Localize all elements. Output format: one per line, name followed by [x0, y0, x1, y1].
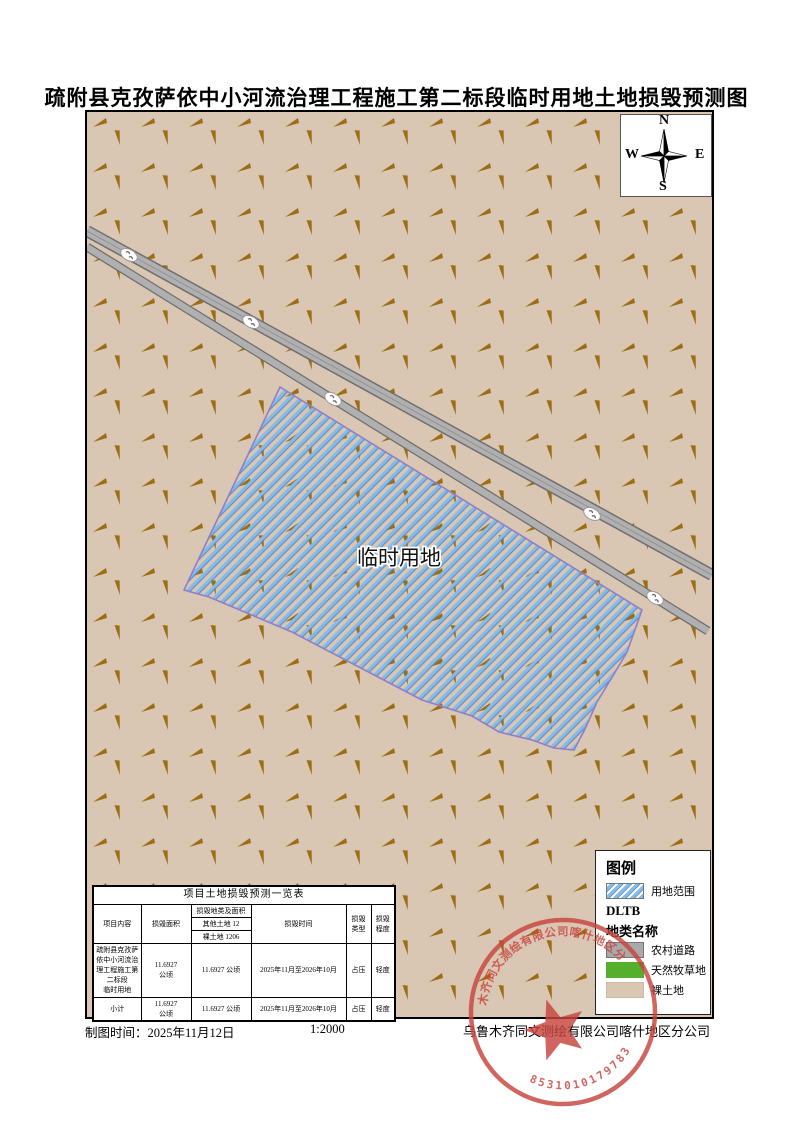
table-row: 小计 11.6927 公顷 11.6927 公顷 2025年11月至2026年1…: [93, 997, 395, 1021]
north-arrow-box: N S W E: [620, 114, 712, 197]
cell-type: 占压: [346, 997, 371, 1021]
header-project: 项目内容: [93, 904, 141, 943]
damage-prediction-table: 项目土地损毁预测一览表 项目内容 损毁面积 损毁地类及面积 损毁时间 损毁 类型…: [92, 885, 396, 1022]
map-time-label: 制图时间：2025年11月12日: [85, 1022, 235, 1041]
cell-time: 2025年11月至2026年10月: [251, 943, 346, 997]
page-title: 疏附县克孜萨依中小河流治理工程施工第二标段临时用地土地损毁预测图: [0, 82, 793, 112]
parcel-label: 临时用地: [357, 546, 441, 570]
header-land-top: 损毁地类及面积: [191, 904, 251, 917]
header-land-bot: 裸土地 1206: [191, 930, 251, 943]
table-title: 项目土地损毁预测一览表: [93, 886, 395, 904]
cell-area: 11.6927 公顷: [141, 943, 191, 997]
document-page: { "doc": { "title": "疏附县克孜萨依中小河流治理工程施工第二…: [0, 0, 793, 1122]
header-area: 损毁面积: [141, 904, 191, 943]
cell-degree: 轻度: [371, 997, 395, 1021]
table-row: 疏附县克孜萨 依中小河流治 理工程施工第 二标段 临时用地 11.6927 公顷…: [93, 943, 395, 997]
cell-land-area: 11.6927 公顷: [191, 943, 251, 997]
compass-n-label: N: [659, 113, 669, 129]
svg-text:8531010179783: 8531010179783: [525, 1040, 641, 1105]
use-area-swatch-icon: [606, 883, 644, 899]
scale-label: 1:2000: [310, 1022, 345, 1037]
header-degree: 损毁 程度: [371, 904, 395, 943]
cell-project: 疏附县克孜萨 依中小河流治 理工程施工第 二标段 临时用地: [93, 943, 141, 997]
cell-degree: 轻度: [371, 943, 395, 997]
map-canvas: 临时用地 N S W E 图例 用地范围 DLTB 地类名称 农村道路: [85, 110, 714, 1019]
cell-land-area: 11.6927 公顷: [191, 997, 251, 1021]
header-land-mid: 其他土地 12: [191, 917, 251, 930]
seal-number: 8531010179783: [525, 1040, 641, 1105]
legend-title: 图例: [606, 857, 710, 878]
compass-w-label: W: [625, 147, 639, 163]
use-area-label: 用地范围: [651, 883, 695, 899]
cell-area: 11.6927 公顷: [141, 997, 191, 1021]
company-seal-stamp: 乌鲁木齐同文测绘有限公司喀什地区分公司 8531010179783: [465, 912, 665, 1112]
cell-project: 小计: [93, 997, 141, 1021]
cell-type: 占压: [346, 943, 371, 997]
header-time: 损毁时间: [251, 904, 346, 943]
compass-e-label: E: [695, 147, 704, 163]
header-type: 损毁 类型: [346, 904, 371, 943]
seal-star-icon: [517, 990, 593, 1064]
compass-s-label: S: [659, 179, 667, 195]
cell-time: 2025年11月至2026年10月: [251, 997, 346, 1021]
